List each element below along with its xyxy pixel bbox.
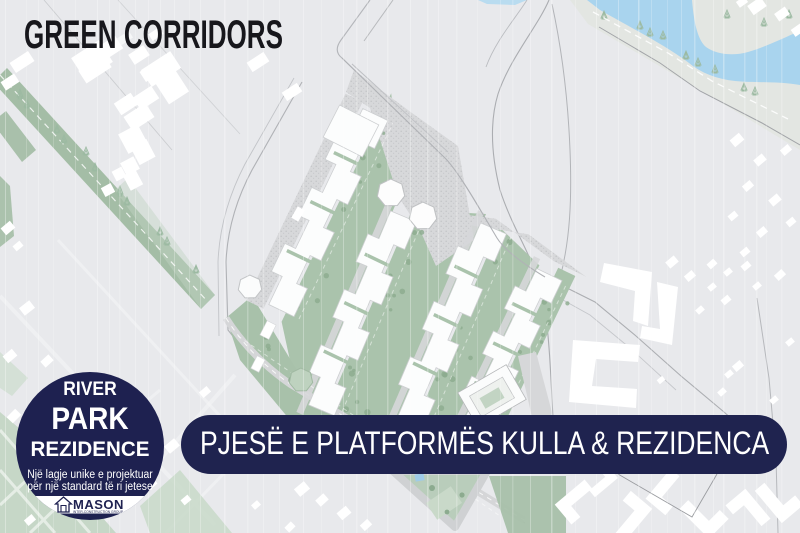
svg-text:INTER-CONSTRUCTION GROUP: INTER-CONSTRUCTION GROUP [73,510,124,514]
